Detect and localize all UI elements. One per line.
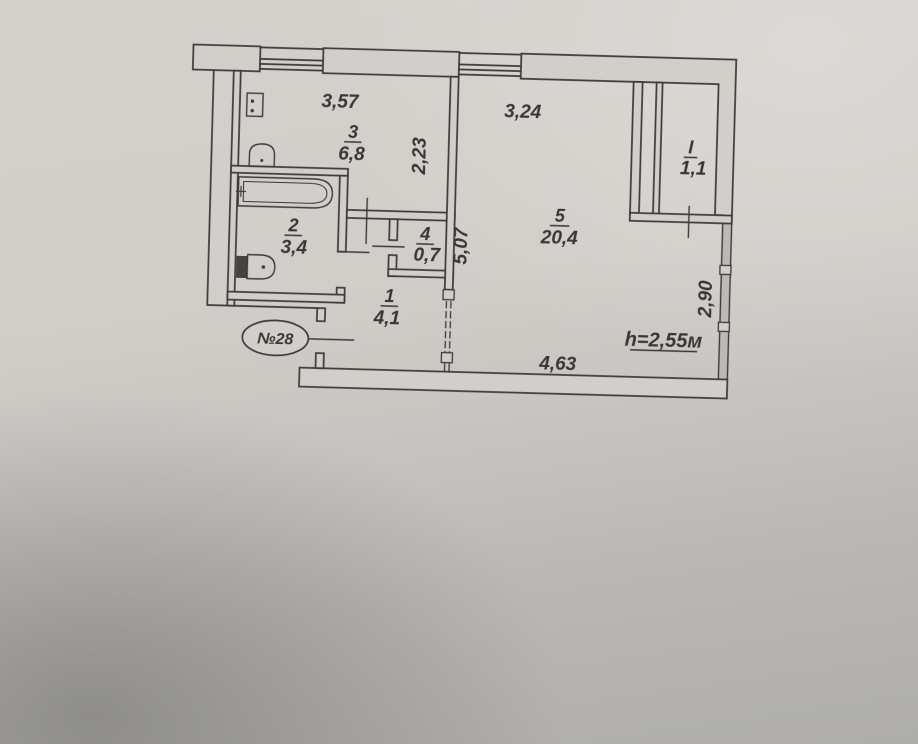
window-frame-mark bbox=[718, 322, 729, 331]
stove-icon bbox=[247, 93, 264, 116]
dim-window-wall: 2,90 bbox=[695, 280, 717, 319]
svg-text:1: 1 bbox=[384, 286, 395, 306]
ceiling-height-label: h=2,55м bbox=[624, 329, 702, 353]
wall-kitchen-hall bbox=[347, 210, 455, 221]
closet-door-mark bbox=[688, 206, 689, 237]
svg-text:6,8: 6,8 bbox=[338, 144, 365, 166]
room-label-kitchen: 3 6,8 bbox=[338, 122, 366, 166]
svg-text:I: I bbox=[688, 137, 695, 157]
balcony-window-wall bbox=[718, 220, 731, 379]
wall-bathroom-bottom bbox=[227, 292, 344, 303]
wall-stub bbox=[443, 290, 454, 300]
photo-background: 3,57 3,24 4,63 2,23 5,07 2,90 3 6,8 2 3,… bbox=[0, 0, 918, 744]
dim-kitchen-width: 3,57 bbox=[321, 91, 360, 113]
room-label-closet: I 1,1 bbox=[680, 137, 708, 180]
room5-window bbox=[459, 53, 522, 76]
boundary-left bbox=[207, 70, 324, 308]
toilet-icon bbox=[236, 254, 275, 279]
apartment-number: №28 bbox=[257, 330, 294, 348]
dashed-opening bbox=[445, 302, 451, 353]
kitchen-window bbox=[260, 47, 324, 70]
dim-kitchen-depth: 2,23 bbox=[409, 137, 431, 176]
floor-plan: 3,57 3,24 4,63 2,23 5,07 2,90 3 6,8 2 3,… bbox=[182, 42, 752, 407]
wall-bathroom-top bbox=[231, 166, 348, 176]
bathtub-icon bbox=[236, 177, 333, 209]
storage-door-mark bbox=[373, 246, 404, 247]
dim-hall-wall: 5,07 bbox=[450, 226, 472, 265]
wall-bottom bbox=[299, 368, 727, 399]
wall-top-right bbox=[517, 54, 736, 221]
svg-text:0,7: 0,7 bbox=[413, 245, 441, 267]
svg-text:4,1: 4,1 bbox=[372, 308, 400, 330]
svg-text:20,4: 20,4 bbox=[539, 227, 578, 249]
dim-room5-top: 3,24 bbox=[504, 101, 542, 123]
wall-pier-top-middle bbox=[323, 48, 460, 77]
bathroom-door-mark bbox=[338, 252, 369, 253]
svg-text:4: 4 bbox=[419, 224, 431, 244]
entrance-wall bbox=[316, 308, 326, 368]
svg-text:3: 3 bbox=[348, 122, 359, 142]
svg-text:1,1: 1,1 bbox=[680, 158, 707, 180]
wall-stub bbox=[441, 353, 452, 363]
room-label-storage: 4 0,7 bbox=[413, 224, 442, 267]
entrance-door-line bbox=[309, 339, 353, 340]
svg-text:3,4: 3,4 bbox=[280, 237, 307, 259]
window-frame-mark bbox=[720, 265, 731, 274]
sink-icon bbox=[249, 144, 275, 167]
room-label-bathroom: 2 3,4 bbox=[280, 215, 308, 259]
wall-pier-top-left bbox=[193, 45, 261, 72]
svg-text:2: 2 bbox=[287, 215, 299, 235]
kitchen-door-mark bbox=[366, 198, 367, 243]
floor-plan-sheet: 3,57 3,24 4,63 2,23 5,07 2,90 3 6,8 2 3,… bbox=[182, 42, 752, 407]
room-label-hallway: 1 4,1 bbox=[372, 286, 401, 330]
svg-text:5: 5 bbox=[555, 206, 567, 226]
dim-bottom: 4,63 bbox=[538, 353, 577, 375]
room-label-living-room: 5 20,4 bbox=[539, 205, 579, 249]
